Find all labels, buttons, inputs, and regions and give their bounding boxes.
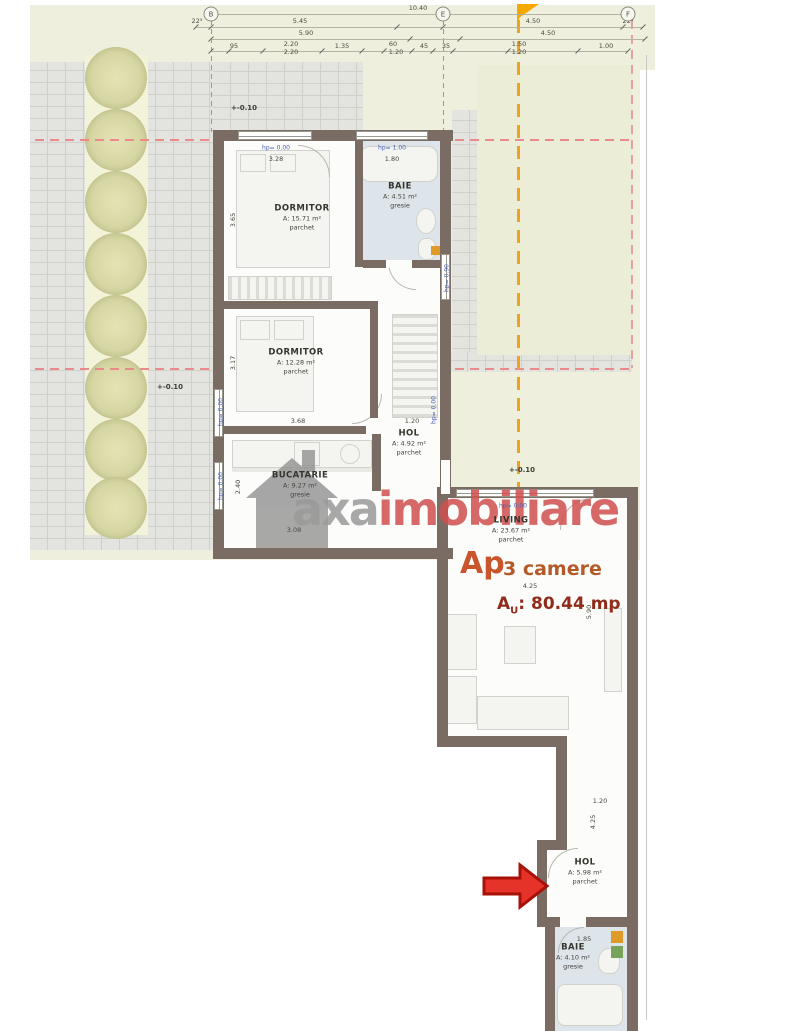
wall xyxy=(355,141,363,267)
paved-strip-right xyxy=(452,110,478,372)
room-label: BAIEA: 4.51 m²gresie xyxy=(383,182,417,211)
tv-cabinet xyxy=(604,608,622,692)
grid-axis-bubble: E xyxy=(436,7,451,22)
red-arrow-icon xyxy=(482,862,550,910)
room-name: HOL xyxy=(392,429,426,440)
apartment-area-label: AU: 80.44 mp xyxy=(497,594,621,616)
wardrobe xyxy=(228,276,332,300)
window xyxy=(238,131,312,140)
top-dimension-label: 4.50 xyxy=(541,29,555,37)
grid-line-e xyxy=(443,20,444,135)
room-label: LIVINGA: 23.67 m²parchet xyxy=(492,516,530,545)
top-dimension-label: 35 xyxy=(442,42,450,50)
tree-icon xyxy=(85,295,147,357)
room-floor: gresie xyxy=(556,963,590,972)
orange-flag-icon xyxy=(519,4,539,18)
grid-axis-bubble: B xyxy=(204,7,219,22)
parapet-height-label: hp= 0.00 xyxy=(431,396,438,424)
door-opening xyxy=(386,260,412,268)
washer-icon xyxy=(611,946,623,958)
watermark-text: axaimobiliare xyxy=(292,486,618,532)
window xyxy=(356,131,428,140)
dimension-label: 5.90 xyxy=(585,605,593,619)
wall xyxy=(370,301,378,418)
top-dimension-label: 1.50 xyxy=(512,40,526,48)
dimension-label: 3.28 xyxy=(269,155,283,163)
dimension-line xyxy=(211,39,645,40)
parapet-height-label: hp= 0.00 xyxy=(218,472,225,500)
tree-icon xyxy=(85,233,147,295)
corridor-floor xyxy=(567,736,627,846)
room-area: A: 9.27 m² xyxy=(272,482,328,491)
room-floor: parchet xyxy=(268,368,323,377)
grid-axis-bubble: F xyxy=(621,7,636,22)
top-dimension-label: 1.20 xyxy=(512,48,526,56)
room-name: HOL xyxy=(568,858,602,869)
bathtub xyxy=(557,984,623,1026)
dimension-label: 3.65 xyxy=(229,213,237,227)
room-floor: parchet xyxy=(568,878,602,887)
room-area: A: 4.51 m² xyxy=(383,193,417,202)
room-area: A: 12.28 m² xyxy=(268,359,323,368)
parapet-height-label: hp= 0.00 xyxy=(218,398,225,426)
elevation-marker: +-0.10 xyxy=(231,104,257,112)
room-floor: gresie xyxy=(383,202,417,211)
wall xyxy=(556,736,567,848)
top-dimension-label: 1.35 xyxy=(335,42,349,50)
dimension-label: 1.20 xyxy=(593,797,607,805)
tree-icon xyxy=(85,357,147,419)
room-name: BUCATARIE xyxy=(272,471,328,482)
dimension-label: 3.68 xyxy=(291,417,305,425)
top-dimension-label: 10.40 xyxy=(409,4,428,12)
sink xyxy=(416,208,436,234)
room-area: A: 4.92 m² xyxy=(392,440,426,449)
tree-icon xyxy=(85,171,147,233)
pillow xyxy=(240,154,266,172)
room-floor: gresie xyxy=(272,491,328,500)
tree-icon xyxy=(85,477,147,539)
room-area: A: 5.98 m² xyxy=(568,869,602,878)
pink-dashed-boundary xyxy=(631,20,633,368)
coffee-table xyxy=(504,626,536,664)
parapet-height-label: hp= 0.00 xyxy=(262,145,290,152)
elevation-marker: +-0.10 xyxy=(509,466,535,474)
parapet-height-label: hp= 0.00 xyxy=(499,503,527,510)
adjacent-parcel xyxy=(477,65,632,355)
room-floor: parchet xyxy=(274,224,329,233)
room-name: BAIE xyxy=(383,182,417,193)
wall xyxy=(440,130,451,498)
room-name: BAIE xyxy=(556,943,590,954)
top-dimension-label: 60 xyxy=(389,40,397,48)
room-area: A: 4.10 m² xyxy=(556,954,590,963)
door-opening xyxy=(560,917,586,927)
wall xyxy=(537,917,638,927)
armchair xyxy=(447,614,477,670)
dimension-label: 4.25 xyxy=(523,582,537,590)
top-dimension-label: 2.20 xyxy=(284,40,298,48)
sofa xyxy=(477,696,569,730)
room-area: A: 15.71 m² xyxy=(274,215,329,224)
dimension-line xyxy=(211,14,628,15)
dimension-label: 3.17 xyxy=(229,356,237,370)
dimension-label: 3.08 xyxy=(287,526,301,534)
dimension-label: 1.80 xyxy=(385,155,399,163)
room-name: DORMITOR xyxy=(274,204,329,215)
floor-plan-canvas: axaimobiliare Ap 3 camere AU: 80.44 mp 1… xyxy=(0,0,800,1031)
room-name: LIVING xyxy=(492,516,530,527)
extension-line xyxy=(646,55,647,1020)
room-area: A: 23.67 m² xyxy=(492,527,530,536)
dimension-label: 1.20 xyxy=(405,417,419,425)
pillow xyxy=(274,320,304,340)
wall xyxy=(545,927,555,1031)
room-label: BAIEA: 4.10 m²gresie xyxy=(556,943,590,972)
wall xyxy=(224,426,366,434)
dimension-line xyxy=(211,51,628,52)
dimension-label: 2.40 xyxy=(234,480,242,494)
top-dimension-label: 2.20 xyxy=(284,48,298,56)
armchair xyxy=(447,676,477,724)
room-label: HOLA: 5.98 m²parchet xyxy=(568,858,602,887)
washer-icon xyxy=(611,931,623,943)
room-label: BUCATARIEA: 9.27 m²gresie xyxy=(272,471,328,500)
apartment-label: Ap xyxy=(460,546,505,581)
top-dimension-label: 4.50 xyxy=(526,17,540,25)
room-floor: parchet xyxy=(492,536,530,545)
top-dimension-label: 1.00 xyxy=(599,42,613,50)
parapet-height-label: hp= 0.90 xyxy=(444,264,451,292)
top-dimension-label: 1.20 xyxy=(389,48,403,56)
tree-icon xyxy=(85,419,147,481)
room-floor: parchet xyxy=(392,449,426,458)
room-label: HOLA: 4.92 m²parchet xyxy=(392,429,426,458)
wall xyxy=(437,736,567,747)
kitchen-sink xyxy=(340,444,360,464)
top-dimension-label: 45 xyxy=(420,42,428,50)
top-dimension-label: 5.45 xyxy=(293,17,307,25)
room-label: DORMITORA: 15.71 m²parchet xyxy=(274,204,329,233)
pillow xyxy=(240,320,270,340)
apartment-rooms-label: 3 camere xyxy=(503,558,602,580)
tree-icon xyxy=(85,47,147,109)
dimension-label: 4.25 xyxy=(589,815,597,829)
elevation-marker: +-0.10 xyxy=(157,383,183,391)
wall xyxy=(627,487,638,1031)
dimension-line xyxy=(196,27,643,28)
parapet-height-label: hp= 1.00 xyxy=(378,145,406,152)
room-name: DORMITOR xyxy=(268,348,323,359)
boiler-icon xyxy=(431,246,440,255)
room-label: DORMITORA: 12.28 m²parchet xyxy=(268,348,323,377)
top-dimension-label: 5.90 xyxy=(299,29,313,37)
wall xyxy=(224,301,376,309)
